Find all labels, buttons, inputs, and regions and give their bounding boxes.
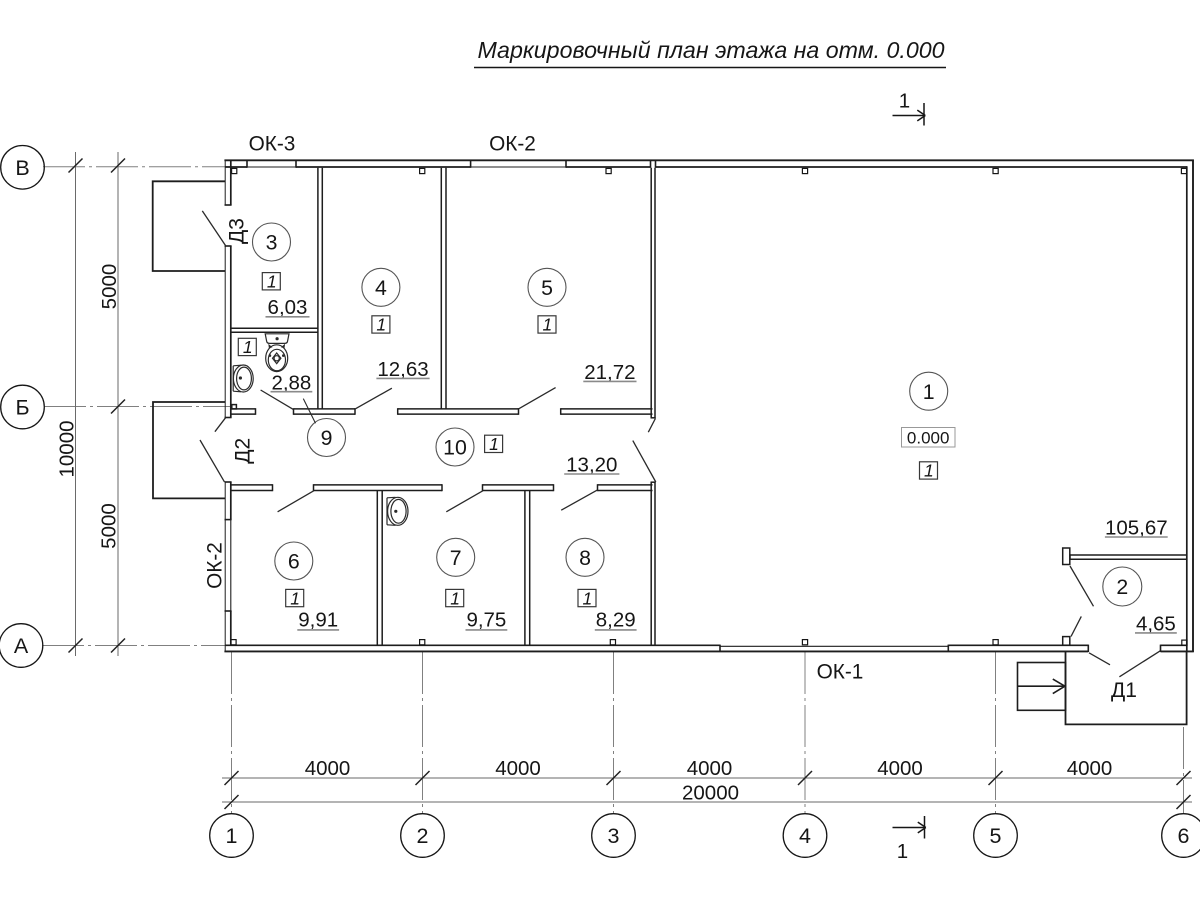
svg-text:Маркировочный план этажа на от: Маркировочный план этажа на отм. 0.000	[477, 37, 944, 63]
svg-text:20000: 20000	[682, 782, 739, 805]
svg-text:1: 1	[923, 380, 935, 404]
svg-text:4000: 4000	[877, 757, 923, 780]
svg-text:0.000: 0.000	[907, 429, 950, 448]
svg-text:1: 1	[897, 840, 908, 863]
svg-text:21,72: 21,72	[584, 361, 635, 384]
svg-text:2: 2	[1116, 575, 1128, 599]
svg-text:5: 5	[541, 276, 553, 300]
svg-text:10000: 10000	[56, 420, 79, 477]
svg-text:8,29: 8,29	[596, 609, 636, 632]
svg-text:5000: 5000	[98, 503, 121, 549]
svg-text:9,75: 9,75	[466, 609, 506, 632]
svg-text:1: 1	[924, 461, 934, 481]
svg-text:4,65: 4,65	[1136, 612, 1176, 635]
svg-text:5: 5	[990, 824, 1002, 848]
svg-text:Б: Б	[15, 396, 29, 420]
svg-text:9: 9	[321, 426, 333, 450]
svg-text:1: 1	[376, 315, 386, 335]
svg-text:10: 10	[443, 436, 467, 460]
svg-text:1: 1	[243, 337, 253, 357]
svg-text:4000: 4000	[1067, 757, 1113, 780]
svg-text:1: 1	[543, 315, 553, 335]
svg-text:9,91: 9,91	[298, 609, 338, 632]
svg-text:3: 3	[608, 824, 620, 848]
svg-text:4: 4	[375, 276, 387, 300]
svg-text:6: 6	[288, 550, 300, 574]
svg-text:6: 6	[1178, 824, 1190, 848]
svg-text:12,63: 12,63	[377, 358, 428, 381]
svg-text:2: 2	[417, 824, 429, 848]
svg-text:3: 3	[266, 231, 278, 255]
svg-text:ОК-2: ОК-2	[204, 542, 227, 589]
svg-text:2,88: 2,88	[271, 371, 311, 394]
svg-text:1: 1	[226, 824, 238, 848]
svg-text:4000: 4000	[687, 757, 733, 780]
svg-text:1: 1	[450, 588, 460, 608]
svg-text:А: А	[14, 634, 29, 658]
svg-text:Д3: Д3	[226, 218, 249, 244]
svg-text:Д1: Д1	[1111, 679, 1137, 702]
svg-text:ОК-3: ОК-3	[249, 133, 296, 156]
svg-text:8: 8	[579, 546, 591, 570]
svg-text:4000: 4000	[305, 757, 351, 780]
svg-text:ОК-1: ОК-1	[817, 661, 864, 684]
svg-text:В: В	[15, 156, 29, 180]
svg-text:6,03: 6,03	[268, 296, 308, 319]
svg-text:ОК-2: ОК-2	[489, 133, 536, 156]
svg-text:4: 4	[799, 824, 811, 848]
svg-text:5000: 5000	[98, 264, 121, 310]
svg-text:1: 1	[290, 588, 300, 608]
svg-text:7: 7	[450, 546, 462, 570]
svg-text:1: 1	[489, 434, 499, 454]
svg-text:1: 1	[267, 272, 277, 292]
svg-text:105,67: 105,67	[1105, 517, 1168, 540]
svg-text:1: 1	[583, 588, 593, 608]
svg-text:1: 1	[899, 90, 910, 113]
svg-text:13,20: 13,20	[566, 454, 617, 477]
svg-text:Д2: Д2	[232, 438, 255, 464]
svg-text:4000: 4000	[495, 757, 541, 780]
